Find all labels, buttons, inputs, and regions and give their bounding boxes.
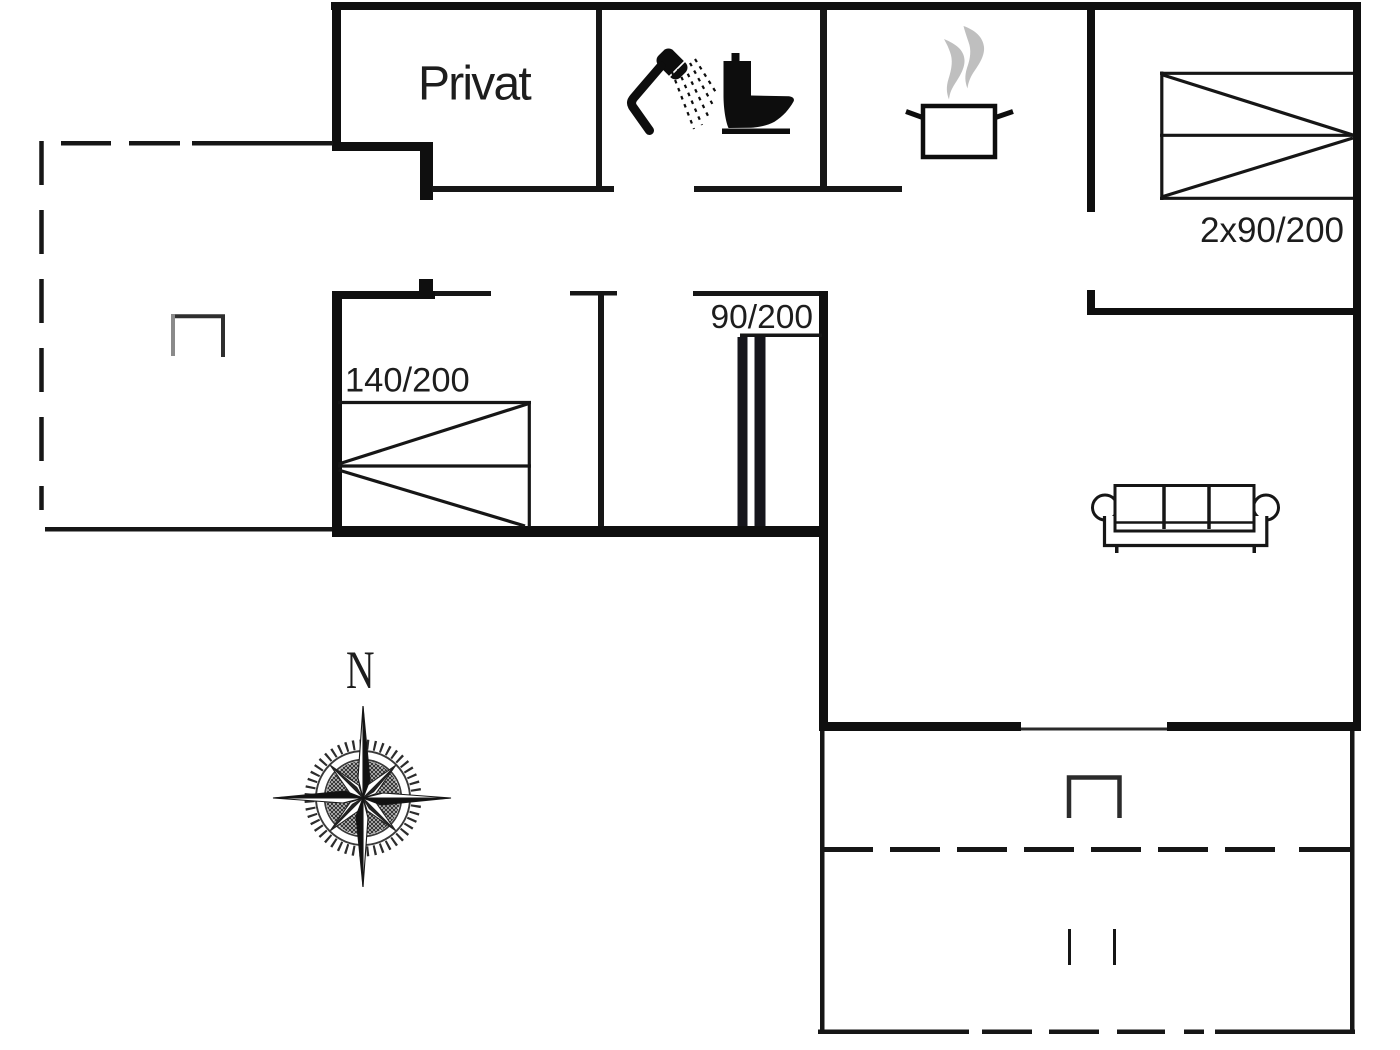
svg-text:Privat: Privat xyxy=(418,58,531,111)
svg-text:140/200: 140/200 xyxy=(345,362,470,400)
svg-text:2x90/200: 2x90/200 xyxy=(1200,211,1344,250)
svg-text:90/200: 90/200 xyxy=(711,299,813,336)
svg-text:N: N xyxy=(346,640,375,700)
